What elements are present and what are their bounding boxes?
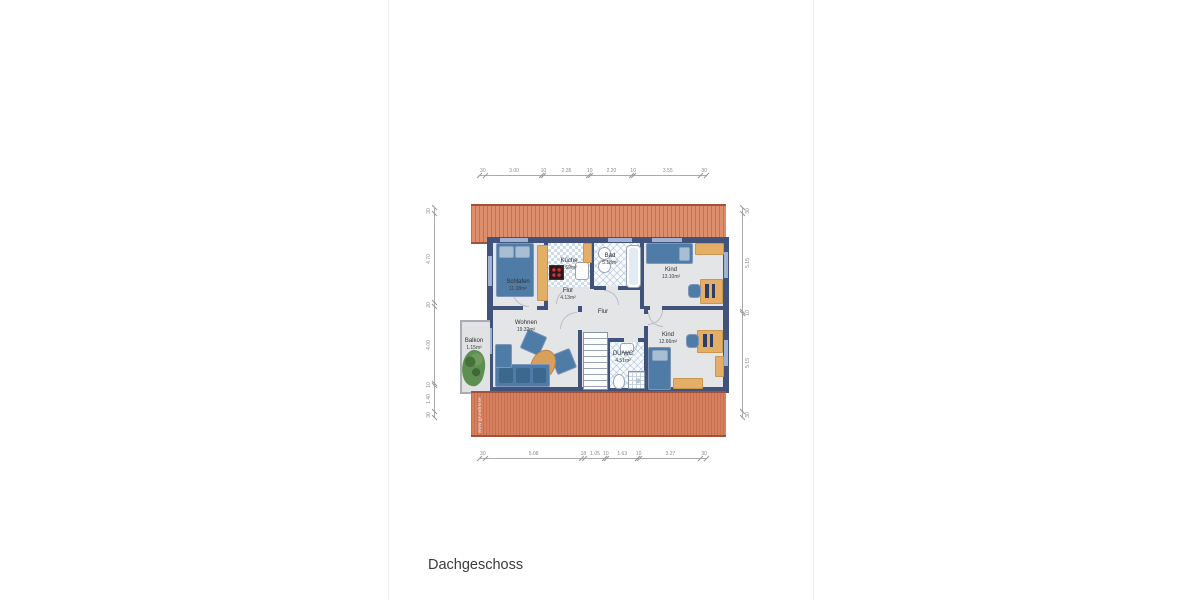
window-kind1-top xyxy=(652,238,682,242)
kind1-chair xyxy=(688,284,701,298)
window-kind2-right xyxy=(724,340,728,366)
dimension-value: 30 xyxy=(426,412,432,418)
dimension-segment: 4.70 xyxy=(425,214,435,304)
desk-monitor-icon xyxy=(710,334,713,347)
room-label-wohnen: Wohnen 19.32m² xyxy=(503,320,549,333)
room-label-kueche: Küche 5.69m² xyxy=(548,258,590,271)
schlafen-wardrobe xyxy=(537,245,548,301)
dimension-segment: 4.00 xyxy=(425,307,435,383)
desk-monitor-icon xyxy=(705,284,709,298)
kind2-dresser xyxy=(673,378,703,389)
wall-schlafen-wohnen-b xyxy=(537,306,548,310)
toilet xyxy=(613,374,625,389)
dimension-value: 2.35 xyxy=(562,168,572,174)
dimension-value: 3.27 xyxy=(666,451,676,457)
dimension-segment: 5.15 xyxy=(742,314,752,412)
dimension-value: 1.05 xyxy=(590,451,600,457)
dimension-value: 5.15 xyxy=(745,358,751,368)
room-label-flur2: Flur xyxy=(588,309,618,316)
dimension-segment: 3.00 xyxy=(486,166,543,176)
dimension-value: 30 xyxy=(745,412,751,418)
shower xyxy=(628,371,645,389)
dimension-value: 4.00 xyxy=(426,341,432,351)
dimension-segment: 30 xyxy=(425,412,435,418)
pillow-icon xyxy=(679,247,690,261)
dimension-segment: 30 xyxy=(701,449,707,459)
wall-wohnen-flur-a xyxy=(578,306,582,312)
dimension-value: 30 xyxy=(701,168,707,174)
sofa-cushion xyxy=(499,368,513,383)
kind1-bed xyxy=(646,243,693,264)
bathtub-basin xyxy=(629,248,638,285)
kind1-wardrobe xyxy=(695,243,724,255)
dimension-value: 1.63 xyxy=(617,451,627,457)
room-label-kind2: Kind 12.66m² xyxy=(648,332,688,345)
window-schlafen-top xyxy=(500,238,528,242)
sofa-cushion xyxy=(533,368,546,383)
dimension-value: 3.55 xyxy=(663,168,673,174)
room-label-kind1: Kind 13.10m² xyxy=(648,267,694,280)
dimension-chain-left: 304.70204.00101.4030 xyxy=(425,208,435,418)
dimension-segment: 30 xyxy=(701,166,707,176)
dimension-value: 30 xyxy=(701,451,707,457)
dimension-chain-top: 303.00102.35102.20103.5530 xyxy=(480,166,707,176)
dimension-segment: 5.08 xyxy=(486,449,582,459)
wall-wohnen-stairs xyxy=(578,330,582,390)
wall-schlafen-wohnen-a xyxy=(493,306,523,310)
dimension-segment: 1.63 xyxy=(607,449,638,459)
dimension-segment: 30 xyxy=(742,412,752,418)
desk-monitor-icon xyxy=(703,334,707,347)
dimension-chain-bottom: 305.08181.05101.63103.2730 xyxy=(480,449,707,459)
bathtub xyxy=(626,245,641,288)
dimension-value: 5.08 xyxy=(529,451,539,457)
pillow-icon xyxy=(652,350,668,361)
dimension-segment: 2.35 xyxy=(544,166,588,176)
dimension-segment: 5.15 xyxy=(742,214,752,312)
room-label-balkon: Balkon 1.15m² xyxy=(458,338,490,351)
dimension-value: 2.20 xyxy=(607,168,617,174)
kind2-desk xyxy=(697,330,723,353)
room-label-bad: Bad 5.18m² xyxy=(596,253,624,266)
desk-monitor-icon xyxy=(712,284,715,298)
window-schlafen-left xyxy=(488,256,492,286)
pillow-icon xyxy=(499,246,514,258)
roof-bottom xyxy=(471,391,726,437)
dimension-segment: 3.55 xyxy=(634,166,701,176)
room-label-schlafen: Schlafen 11.08m² xyxy=(495,279,541,292)
dimension-value: 5.15 xyxy=(745,258,751,268)
room-label-duwc: DU/WC 4.51m² xyxy=(604,351,642,364)
dimension-chain-right: 305.15105.1530 xyxy=(742,208,752,418)
dimension-value: 1.40 xyxy=(426,394,432,404)
dimension-value: 4.70 xyxy=(426,254,432,264)
dimension-value: 3.00 xyxy=(509,168,519,174)
dimension-segment: 3.27 xyxy=(640,449,702,459)
wohnen-sofa-corner xyxy=(495,344,512,368)
window-bad-top xyxy=(608,238,632,242)
sofa-cushion xyxy=(516,368,530,383)
dimension-segment: 1.40 xyxy=(425,386,435,413)
pillow-icon xyxy=(515,246,530,258)
window-kind1-right xyxy=(724,252,728,278)
dimension-segment: 1.05 xyxy=(585,449,605,459)
dimension-segment: 2.20 xyxy=(591,166,633,176)
kind1-desk xyxy=(700,279,723,304)
room-label-flur1: Flur 4.13m² xyxy=(550,288,586,301)
page-title: Dachgeschoss xyxy=(428,557,523,573)
wall-kind1-flur-b xyxy=(662,306,723,310)
kind2-bed xyxy=(648,347,671,390)
kind2-shelf xyxy=(715,356,724,377)
watermark: www.grundrisse xyxy=(477,393,482,433)
